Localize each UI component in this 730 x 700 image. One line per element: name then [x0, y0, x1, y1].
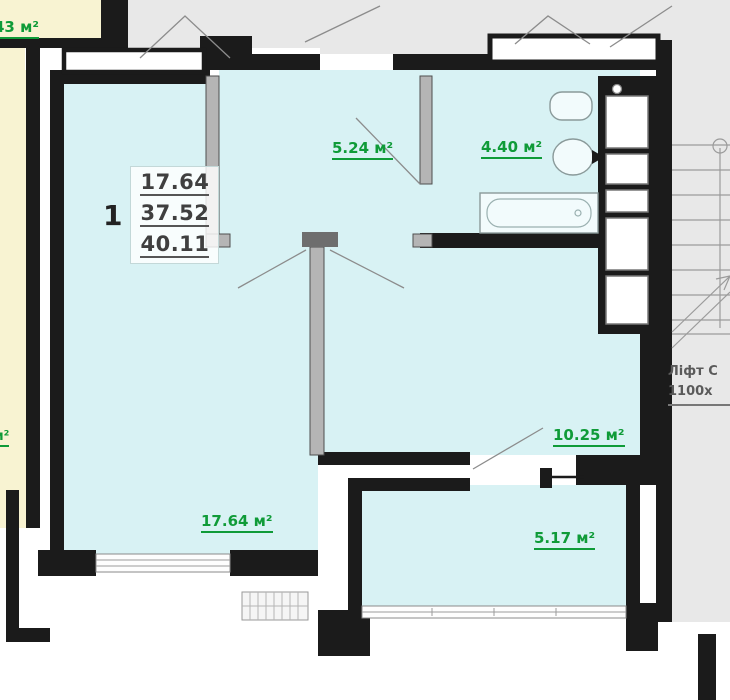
- wall-neighbor-top: [0, 38, 103, 48]
- floor-plan: 43 м² м² 5.24 м² 4.40 м² 10.25 м² 17.64 …: [0, 0, 730, 700]
- floor-plan-drawing: [0, 0, 730, 700]
- vent-shaft-block: [606, 218, 648, 270]
- partition-mid-cap: [302, 232, 338, 247]
- wall-balcony-se-pillar: [626, 603, 658, 651]
- elevator-label: Ліфт С 1100х: [668, 362, 730, 406]
- wall-bottom-left-pillar: [38, 550, 96, 576]
- partition-hallway-bathroom: [420, 76, 432, 184]
- vent-shaft-block: [606, 276, 648, 324]
- apartment-areas-box: 17.64 37.52 40.11: [130, 166, 219, 264]
- window-living: [96, 554, 230, 572]
- vent-shaft-block: [606, 190, 648, 212]
- wall-balcony-north: [348, 478, 470, 491]
- vent-marker-icon: [613, 85, 622, 94]
- elevator-size: 1100х: [668, 382, 730, 402]
- sink: [553, 139, 593, 175]
- apartment-info: 1 17.64 37.52 40.11: [103, 166, 219, 264]
- wall-bottom-mid: [230, 550, 318, 576]
- wall-top-mid: [205, 54, 320, 70]
- label-living-area: 17.64 м²: [201, 513, 273, 533]
- wall-pillar-top-left: [101, 0, 128, 52]
- wall-stairwell: [656, 40, 672, 622]
- wall-neighbor-bottom-left: [6, 490, 19, 640]
- partition-living-kitchen: [310, 247, 324, 455]
- wall-kitchen-south: [318, 452, 470, 465]
- wall-left: [50, 70, 64, 564]
- wall-neighbor-right: [26, 40, 40, 528]
- label-bathroom-area: 4.40 м²: [481, 139, 542, 159]
- apartment-total-area: 40.11: [140, 232, 209, 258]
- corridor-niche-left: [64, 50, 204, 72]
- entry-porch-step: [242, 592, 308, 620]
- toilet: [550, 92, 592, 120]
- wall-bottom-right: [698, 634, 716, 700]
- wall-balcony-east: [626, 485, 640, 613]
- vent-shaft-block: [606, 96, 648, 148]
- apartment-living-area: 17.64: [140, 170, 209, 196]
- wall-right-of-balcony-door: [576, 455, 656, 485]
- wall-kitchen-east: [640, 334, 656, 464]
- apartment-number: 1: [103, 199, 122, 232]
- wall-bathroom-bottom: [420, 233, 604, 248]
- vestibule-niche: [490, 36, 658, 62]
- neighbor-apartment-strip: [0, 40, 26, 528]
- wall-neighbor-bottom: [6, 628, 50, 642]
- elevator-name: Ліфт С: [668, 362, 730, 382]
- wall-balcony-west: [348, 478, 362, 613]
- label-kitchen-area: 10.25 м²: [553, 427, 625, 447]
- label-hallway-area: 5.24 м²: [332, 140, 393, 160]
- vent-shaft-block: [606, 154, 648, 184]
- apartment-area: 37.52: [140, 201, 209, 227]
- label-neighbor-area-left: м²: [0, 430, 9, 447]
- partition-mid-stub-right: [413, 234, 432, 247]
- label-balcony-area: 5.17 м²: [534, 530, 595, 550]
- wall-top-pilaster: [200, 36, 252, 56]
- vent-shaft-blocks: [606, 96, 648, 324]
- label-neighbor-area-top: 43 м²: [0, 19, 39, 39]
